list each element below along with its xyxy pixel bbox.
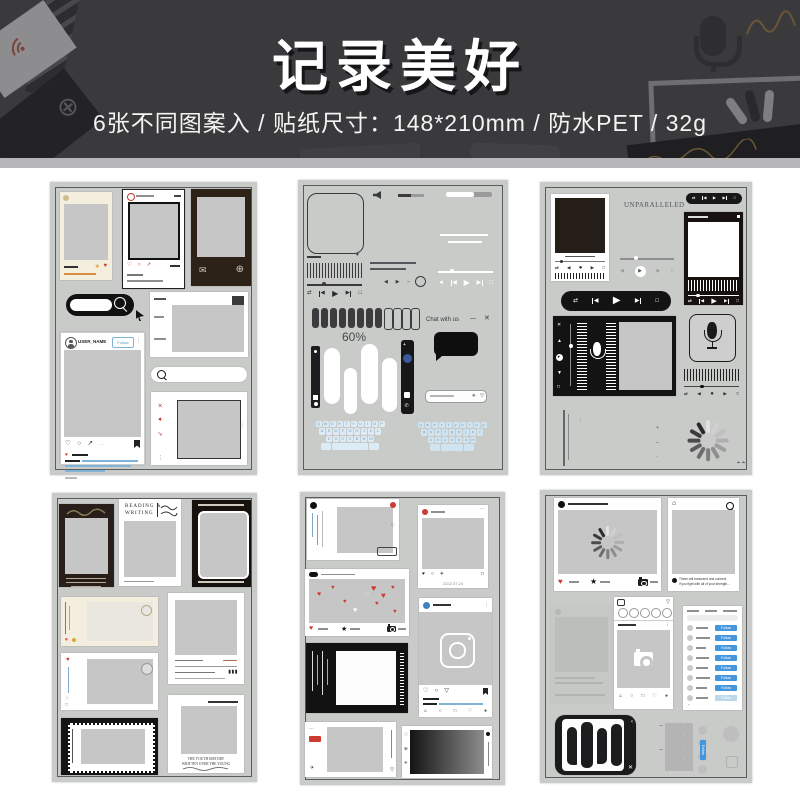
progress-thumb[interactable]: [696, 294, 700, 298]
bottom-nav[interactable]: ⌂○ □♡●: [619, 694, 668, 699]
keyboard-key[interactable]: U: [358, 421, 364, 428]
facebook-icon[interactable]: [403, 354, 412, 363]
avatar: [698, 726, 707, 735]
vertical-text-line: [563, 410, 565, 466]
timestamp-line: [65, 477, 77, 479]
progress-thumb[interactable]: [322, 282, 326, 286]
keyboard-key[interactable]: O: [372, 421, 378, 428]
avatar-dot: [310, 502, 317, 509]
share-icon: ↗: [88, 441, 93, 448]
youth-history-frame: THE YOUTH HISTORY WRITTEN OVER THE YOUNG: [168, 695, 244, 773]
repeat-icon: □: [489, 280, 493, 286]
comment-icon: ○: [77, 441, 81, 448]
keyboard-key[interactable]: Q: [316, 421, 322, 428]
landscape-player: ✕ ▲ ♥ ▼ □: [553, 316, 676, 396]
keyboard-key[interactable]: W: [323, 421, 329, 428]
photo-placeholder: [619, 322, 672, 390]
keyboard-key[interactable]: u: [460, 422, 466, 429]
photo-placeholder: [181, 706, 237, 754]
vertical-label-line: [327, 659, 328, 685]
hashtag-line: [439, 703, 483, 705]
previous-icon: ◀: [702, 196, 707, 200]
like-heart-icon[interactable]: ♥: [309, 625, 313, 632]
globe-icon: ⊕: [404, 746, 408, 752]
cursor-arrow-icon: [136, 310, 144, 321]
keyboard-row[interactable]: zxcvbnm: [408, 436, 496, 444]
white-progress-bar[interactable]: [446, 192, 492, 197]
playback-controls[interactable]: ⇄◀ ● ▶□: [684, 391, 739, 397]
nav-line-faint: [555, 694, 605, 696]
microphone-card: [689, 314, 736, 362]
name-line: [696, 667, 708, 669]
previous-icon: ◀: [451, 280, 457, 286]
keyboard-key[interactable]: w: [425, 422, 431, 429]
song-title-line: [565, 256, 595, 257]
search-icon: ○: [439, 709, 442, 714]
playback-controls[interactable]: ⇄◀ ● ▶□: [555, 265, 605, 271]
album-art-outline: [307, 193, 364, 254]
hashtag-line: [82, 460, 138, 462]
follow-button[interactable]: Follow: [112, 337, 134, 348]
stamp-frame: [61, 718, 158, 775]
keyboard-key[interactable]: K: [368, 428, 374, 435]
more-icon[interactable]: ⋮: [136, 338, 141, 344]
caret-icon: ⌃: [687, 703, 690, 708]
count-line: [398, 628, 406, 630]
black-search-bar[interactable]: [66, 294, 134, 316]
keyboard-key[interactable]: r: [439, 422, 445, 429]
back-icon[interactable]: ‹: [631, 719, 633, 725]
heart-outline-icon: ♡: [423, 688, 428, 694]
ghost-frame: [551, 606, 612, 703]
song-title-line: [307, 256, 321, 258]
vertical-text-line: [391, 730, 392, 758]
keyboard-row[interactable]: asdfghjkl: [408, 429, 496, 437]
vertical-caption-line: [317, 515, 318, 545]
heart-icon: ♥: [375, 601, 379, 607]
text-line: [124, 581, 154, 582]
keyboard-key[interactable]: M: [368, 436, 374, 443]
camera-outline-icon[interactable]: [617, 599, 625, 606]
keyboard-key[interactable]: p: [481, 422, 487, 429]
keyboard-key[interactable]: L: [375, 428, 381, 435]
count-line: [318, 628, 328, 630]
vertical-label-line: [322, 651, 323, 695]
heart-icon[interactable]: ♥: [356, 252, 359, 258]
hashtag-line: [65, 465, 131, 467]
like-heart-icon[interactable]: ♥: [558, 577, 563, 586]
comment-icon: ○: [431, 572, 434, 577]
landscape-post-frame: [150, 292, 248, 357]
keyboard-key[interactable]: C: [340, 436, 346, 443]
caption-line-orange: [64, 273, 96, 275]
keyboard-key[interactable]: z: [428, 437, 434, 444]
follow-button[interactable]: Follow: [715, 635, 737, 641]
faint-shape-decoration: [470, 142, 561, 158]
tab-line[interactable]: [705, 610, 717, 612]
next-icon: ▶: [591, 266, 594, 271]
keyboard-key[interactable]: s: [428, 429, 434, 436]
previous-icon: ◀: [620, 269, 624, 274]
keyboard-key[interactable]: V: [347, 436, 353, 443]
keyboard-key[interactable]: i: [467, 422, 473, 429]
instagram-post-frame: ⋮ ♡○▽ ⌂○ □♡●: [419, 598, 492, 717]
dot: [314, 402, 318, 406]
white-search-bar[interactable]: [151, 367, 247, 382]
mic-icon[interactable]: ▽: [480, 393, 484, 399]
send-icon[interactable]: ▽: [666, 599, 670, 605]
vertical-caption-line: [312, 513, 313, 537]
keyboard-row-space[interactable]: [408, 444, 496, 452]
keyboard-key[interactable]: X: [333, 436, 339, 443]
phone-screen: [562, 719, 624, 771]
white-pill-sticker: [361, 344, 378, 404]
faint-square: [726, 756, 738, 768]
keyboard-key[interactable]: B: [354, 436, 360, 443]
avatar-dot-faint: [555, 609, 561, 615]
text-line: [175, 660, 203, 661]
keyboard-lowercase[interactable]: qwertyuiop asdfghjkl zxcvbnm: [408, 421, 496, 451]
keyboard-key[interactable]: k: [470, 429, 476, 436]
photo-placeholder: ♥ ♥ ♥ ♥ ♡ ♥ ♥ ♥ ♥ ♥: [309, 579, 405, 623]
stamp-circle: [141, 605, 152, 616]
play-icon: ▶: [613, 296, 621, 306]
bookmark-icon[interactable]: □: [481, 571, 484, 577]
keyboard-key[interactable]: t: [446, 422, 452, 429]
story-circle[interactable]: [651, 608, 661, 618]
bottom-nav[interactable]: ⌂○ □♡●: [424, 709, 487, 714]
keyboard-key[interactable]: G: [347, 428, 353, 435]
likes-count-line: [72, 454, 88, 456]
search-icon: ○: [630, 694, 633, 699]
progress-fill: [446, 192, 474, 197]
shuffle-icon: ⇄: [573, 298, 578, 304]
keyboard-key[interactable]: E: [330, 421, 336, 428]
camera-icon[interactable]: [638, 579, 648, 586]
slider-thumb[interactable]: [634, 256, 638, 260]
stamp-circle: [141, 663, 153, 675]
sticker-sheet-2-transparent-ui: ♥ ⇄◀ ▶ ▶□ ◀▶– ◄◀ ▶ ▶□ 60% + ✆ Cha: [298, 180, 508, 475]
black-rounded-frame: [192, 500, 251, 587]
stop-icon[interactable]: □: [557, 384, 560, 390]
story-circle[interactable]: [618, 608, 628, 618]
search-input-field[interactable]: [70, 299, 112, 311]
envelope-icon[interactable]: ✉: [199, 265, 207, 276]
share-icon: ↗: [156, 431, 163, 436]
keyboard-key[interactable]: f: [442, 429, 448, 436]
count-line: [569, 581, 579, 583]
keyboard-key[interactable]: v: [449, 437, 455, 444]
profile-icon: [127, 193, 135, 201]
reaction-icons[interactable]: ♡○↗: [127, 263, 151, 269]
home-icon: ⌂: [424, 709, 427, 714]
lyric-line: [370, 262, 416, 264]
follow-button[interactable]: Follow: [715, 665, 737, 671]
photo-placeholder: [197, 197, 245, 257]
keyboard-key[interactable]: e: [432, 422, 438, 429]
gradient-photo-frame: ♡ ⊕ ✈: [402, 726, 492, 778]
keyboard-row[interactable]: qwertyuiop: [408, 421, 496, 429]
speech-bubble: [434, 332, 478, 356]
photo-placeholder: [64, 350, 141, 437]
dot-mark: ·: [656, 454, 658, 460]
story-circle[interactable]: [640, 608, 650, 618]
keyboard-row-space[interactable]: [310, 443, 390, 451]
keyboard-key[interactable]: a: [421, 429, 427, 436]
slider-thumb[interactable]: [569, 344, 573, 348]
photo-grid: [659, 723, 693, 771]
phone-sidebar-right: + ✆: [401, 340, 414, 414]
keyboard-key[interactable]: D: [333, 428, 339, 435]
chat-bubble: [581, 722, 593, 768]
keyboard-key[interactable]: J: [361, 428, 367, 435]
keyboard-key[interactable]: F: [340, 428, 346, 435]
keyboard-uppercase[interactable]: QWERTYUIOP ASDFGHJKL ZXCVBNM: [310, 420, 390, 450]
username-label: USER_NAME: [78, 339, 106, 344]
keyboard-key[interactable]: N: [361, 436, 367, 443]
title-line: [321, 574, 355, 576]
bookmark-icon[interactable]: [134, 440, 140, 448]
playback-controls[interactable]: ⇄◀ ▶ ▶□: [307, 290, 362, 298]
previous-icon: ◀: [699, 299, 704, 304]
reels-icon: □: [641, 694, 644, 699]
photo-placeholder: [198, 511, 249, 579]
follow-button-muted[interactable]: Follow: [715, 695, 737, 701]
profile-icon: ●: [665, 694, 668, 699]
follow-button[interactable]: Follow: [715, 675, 737, 681]
keyboard-key[interactable]: A: [319, 428, 325, 435]
more-icon: ⋮: [240, 422, 245, 428]
spinner-segment: [606, 549, 609, 559]
more-icon[interactable]: ⋯: [480, 506, 485, 512]
phone-chat-frame: ‹ ✕: [555, 715, 636, 775]
slider[interactable]: [620, 258, 674, 260]
keyboard-key[interactable]: h: [456, 429, 462, 436]
keyboard-row[interactable]: QWERTYUIOP: [310, 420, 390, 428]
camera-placeholder-icon: [634, 652, 653, 666]
share-icon: ✈: [310, 765, 314, 771]
barcode-marks: ▮▮▮: [228, 669, 238, 675]
avatar: [687, 655, 693, 661]
likes-line: [423, 698, 439, 700]
keyboard-key[interactable]: b: [456, 437, 462, 444]
playback-controls[interactable]: ⇄◀ ▶ ▶□: [688, 298, 739, 305]
heart-outline-icon: ♡: [65, 441, 71, 448]
caption-text-1: These will transcend and connect: [679, 577, 735, 581]
youth-caption-1: THE YOUTH HISTORY: [168, 757, 244, 761]
search-field[interactable]: [687, 615, 738, 621]
heart-button[interactable]: ♥: [556, 354, 563, 361]
keyboard-key[interactable]: T: [344, 421, 350, 428]
keyboard-row[interactable]: ASDFGHJKL: [310, 428, 390, 436]
progress-bar[interactable]: [307, 284, 362, 286]
keyboard-key[interactable]: c: [442, 437, 448, 444]
battery-segments: [312, 308, 418, 328]
follow-button[interactable]: Follow: [715, 645, 737, 651]
photo-placeholder: [422, 518, 484, 569]
shuffle-icon: ⇄: [684, 392, 688, 397]
follow-button-vertical[interactable]: Follow: [700, 740, 706, 760]
keyboard-key[interactable]: S: [326, 428, 332, 435]
playback-controls[interactable]: ⇄◀ ▶ ▶□: [573, 296, 659, 306]
minimize-icon[interactable]: —: [470, 316, 476, 322]
photo-placeholder: [336, 651, 396, 705]
dark-script-frame: [59, 504, 114, 587]
name-line: [696, 687, 707, 689]
more-icon[interactable]: ⋮: [484, 602, 489, 608]
close-icon[interactable]: ✕: [628, 764, 633, 771]
photo-placeholder: [81, 729, 145, 764]
star-icon: ★: [95, 263, 100, 270]
slider-thumb[interactable]: [700, 385, 704, 389]
square-icon: □: [65, 702, 68, 707]
follow-button[interactable]: Follow: [715, 655, 737, 661]
white-slider[interactable]: [438, 271, 493, 273]
close-icon[interactable]: ✕: [557, 322, 561, 328]
send-icon[interactable]: ✈: [472, 393, 476, 399]
bookmark-icon[interactable]: [483, 688, 488, 695]
instagram-logo-icon: [440, 633, 475, 668]
flower-stamp-icon: [63, 195, 69, 201]
livestream-spinner-frame: ♥ ★: [554, 498, 661, 591]
text-line: [71, 586, 101, 587]
keyboard-key[interactable]: l: [477, 429, 483, 436]
sticker-sheet-1-photo-frames: ★ ♥ ♡○↗ ✉ ⊕ USER_NAME Follow ⋮: [50, 182, 257, 475]
keyboard-row[interactable]: ZXCVBNM: [310, 435, 390, 443]
previous-icon: ◀: [592, 298, 598, 304]
keyboard-key[interactable]: x: [435, 437, 441, 444]
keyboard-key[interactable]: q: [418, 422, 424, 429]
heart-icon: ♥: [317, 591, 321, 598]
divider: [157, 503, 158, 517]
thumb-icon: ♡: [364, 591, 369, 598]
keyboard-key[interactable]: H: [354, 428, 360, 435]
waveform: [688, 280, 739, 291]
avatar-dot: [558, 501, 565, 508]
header-bottom-strip: [0, 158, 800, 168]
heart-icon: ♥: [393, 609, 397, 615]
avatar-pill: [309, 572, 318, 577]
keyboard-key[interactable]: g: [449, 429, 455, 436]
action-icons[interactable]: ♥○✈: [422, 572, 444, 577]
cream-polaroid-frame: ★ ♥: [60, 192, 112, 280]
down-icon[interactable]: ▼: [557, 370, 562, 376]
spinner-segment: [706, 449, 710, 462]
header-line: [688, 216, 708, 218]
tab-line[interactable]: [687, 610, 699, 612]
home-search-frame: ⌂ These will transcend and connect if yo…: [668, 498, 739, 591]
phone-icon[interactable]: ✆: [405, 403, 409, 409]
text-line: [175, 672, 215, 673]
message-input[interactable]: ✈ ▽: [425, 390, 487, 403]
tab-line[interactable]: [723, 610, 737, 612]
keyboard-key[interactable]: y: [453, 422, 459, 429]
keyboard-key[interactable]: Y: [351, 421, 357, 428]
more-icon[interactable]: ⋮: [666, 622, 671, 628]
heart-icon: ♥: [558, 354, 560, 359]
signature-scribble: [160, 503, 178, 517]
large-avatar: [723, 726, 739, 742]
search-icon[interactable]: [157, 370, 166, 379]
previous-icon: ◀: [319, 291, 325, 297]
caption-line: [423, 703, 437, 705]
keyboard-key[interactable]: R: [337, 421, 343, 428]
playback-controls[interactable]: ⇄◀ ▶▶□: [692, 196, 736, 200]
search-icon[interactable]: [726, 502, 734, 510]
instagram-frame-bordered: ♡○↗: [122, 189, 185, 289]
action-icons[interactable]: ♡○▽: [423, 688, 449, 694]
up-icon[interactable]: ▲: [557, 338, 562, 344]
white-pill-sticker: [344, 368, 357, 414]
volume-slider[interactable]: [398, 194, 424, 197]
search-icon[interactable]: [114, 297, 126, 309]
heart-icon: ♥: [371, 583, 376, 593]
keyboard-key[interactable]: j: [463, 429, 469, 436]
record-icon: ●: [710, 391, 714, 397]
name-line: [696, 637, 710, 639]
keyboard-key[interactable]: n: [463, 437, 469, 444]
action-icons[interactable]: ♡○↗: [65, 441, 93, 448]
faint-controls[interactable]: ◀ ▶ ▶□: [620, 266, 674, 277]
repeat-icon: □: [671, 269, 674, 274]
close-icon[interactable]: ✕: [484, 314, 490, 322]
reels-icon: □: [453, 709, 456, 714]
rotated-post-frame: ✕ ♥ ↗ ⋮ ⋮: [151, 392, 247, 465]
vertical-text-line: [65, 602, 66, 634]
home-icon[interactable]: ⌂: [672, 500, 676, 507]
star-icon[interactable]: ★: [341, 625, 347, 633]
follow-button[interactable]: Follow: [715, 685, 737, 691]
keyboard-key[interactable]: m: [470, 437, 476, 444]
dots-indicator: ⋯: [99, 442, 104, 448]
name-line: [696, 677, 710, 679]
vertical-slider[interactable]: [570, 324, 571, 386]
white-pill-sticker: [324, 348, 340, 404]
slider[interactable]: [684, 386, 739, 387]
photo-placeholder: [65, 518, 108, 574]
stop-icon: □: [736, 299, 739, 304]
play-icon: ▶: [711, 298, 716, 305]
timer-icon: [415, 276, 426, 287]
progress-thumb[interactable]: [560, 260, 563, 263]
previous-icon: ◀: [384, 280, 388, 285]
keyboard-key[interactable]: I: [365, 421, 371, 428]
keyboard-key[interactable]: d: [435, 429, 441, 436]
keyboard-key[interactable]: Z: [326, 436, 332, 443]
star-icon[interactable]: ★: [590, 577, 597, 586]
keyboard-key[interactable]: P: [379, 421, 385, 428]
white-playback-controls[interactable]: ◄◀ ▶ ▶□: [438, 279, 493, 287]
follow-button[interactable]: Follow: [715, 625, 737, 631]
mini-controls[interactable]: ◀▶–: [384, 280, 410, 285]
avatar: [687, 625, 693, 631]
vertical-label-line: [317, 655, 318, 685]
globe-icon[interactable]: ⊕: [236, 264, 244, 275]
favorite-button[interactable]: [377, 547, 397, 556]
story-circle[interactable]: [629, 608, 639, 618]
stop-icon: □: [736, 392, 739, 397]
camera-icon[interactable]: [387, 626, 396, 632]
avatar-dot: [672, 578, 677, 583]
photo-placeholder-faint: [555, 617, 608, 672]
slider-thumb[interactable]: [450, 269, 454, 273]
speaker-icon[interactable]: [373, 191, 381, 199]
volume-fill: [398, 194, 411, 197]
story-circle[interactable]: [662, 608, 672, 618]
chat-icon[interactable]: [404, 392, 410, 398]
keyboard-key[interactable]: o: [474, 422, 480, 429]
text-line-faint: [555, 677, 595, 679]
